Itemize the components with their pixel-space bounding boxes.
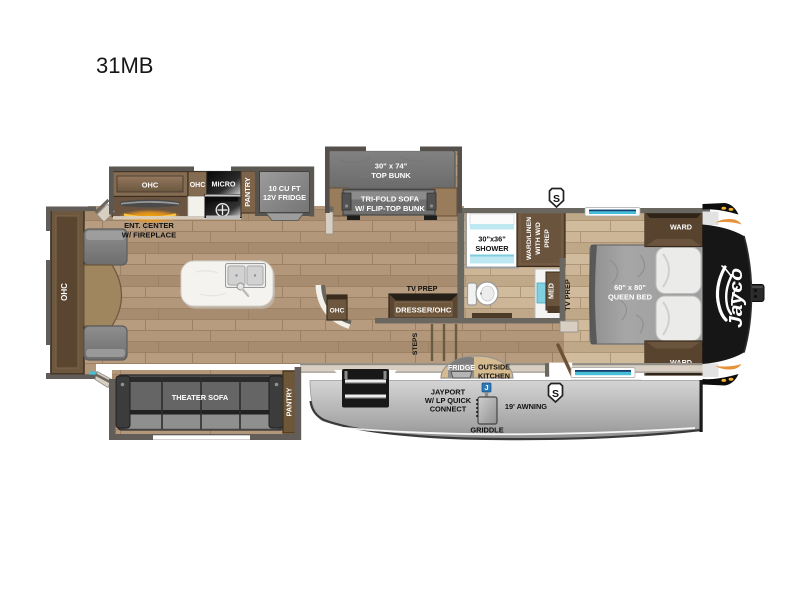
svg-text:30" x 74": 30" x 74" xyxy=(375,162,408,171)
svg-text:W/ FIREPLACE: W/ FIREPLACE xyxy=(122,231,176,240)
svg-text:Jayco: Jayco xyxy=(725,268,746,328)
svg-text:THEATER SOFA: THEATER SOFA xyxy=(172,393,229,402)
svg-text:CONNECT: CONNECT xyxy=(430,405,467,414)
svg-text:OHC: OHC xyxy=(330,308,345,315)
svg-text:TV PREP: TV PREP xyxy=(407,284,438,293)
svg-text:W/ FLIP-TOP BUNK: W/ FLIP-TOP BUNK xyxy=(355,204,425,213)
svg-text:OHC: OHC xyxy=(142,181,159,190)
svg-text:PANTRY: PANTRY xyxy=(243,177,252,207)
svg-text:WARD/LINEN: WARD/LINEN xyxy=(526,217,533,260)
svg-text:ENT. CENTER: ENT. CENTER xyxy=(124,221,174,230)
svg-text:WITH W/D: WITH W/D xyxy=(535,222,542,255)
svg-text:STEPS: STEPS xyxy=(412,332,419,355)
svg-text:MED: MED xyxy=(547,283,556,299)
svg-text:PANTRY: PANTRY xyxy=(285,387,294,416)
svg-text:60" x 80": 60" x 80" xyxy=(614,283,646,292)
svg-text:DRESSER/OHC: DRESSER/OHC xyxy=(396,306,452,315)
svg-text:19' AWNING: 19' AWNING xyxy=(505,402,547,411)
svg-text:MICRO: MICRO xyxy=(212,180,236,189)
svg-text:SHOWER: SHOWER xyxy=(475,244,509,253)
svg-text:QUEEN BED: QUEEN BED xyxy=(608,293,653,302)
svg-text:OHC: OHC xyxy=(60,283,69,301)
svg-text:GRIDDLE: GRIDDLE xyxy=(470,426,503,435)
svg-text:TOP BUNK: TOP BUNK xyxy=(371,171,411,180)
svg-text:TRI-FOLD SOFA: TRI-FOLD SOFA xyxy=(361,195,420,204)
svg-text:WARD: WARD xyxy=(670,223,692,232)
svg-text:OUTSIDE: OUTSIDE xyxy=(478,363,510,372)
svg-text:31MB: 31MB xyxy=(96,53,153,78)
svg-text:S: S xyxy=(552,388,559,400)
svg-text:FRIDGE: FRIDGE xyxy=(448,363,475,372)
svg-text:12V FRIDGE: 12V FRIDGE xyxy=(263,193,306,202)
svg-text:J: J xyxy=(484,383,488,392)
svg-text:S: S xyxy=(553,193,560,205)
svg-text:OHC: OHC xyxy=(190,182,206,189)
svg-text:10 CU FT: 10 CU FT xyxy=(268,184,301,193)
svg-text:KITCHEN: KITCHEN xyxy=(478,372,510,381)
svg-text:PREP: PREP xyxy=(544,229,551,248)
svg-text:30"x36": 30"x36" xyxy=(478,235,506,244)
